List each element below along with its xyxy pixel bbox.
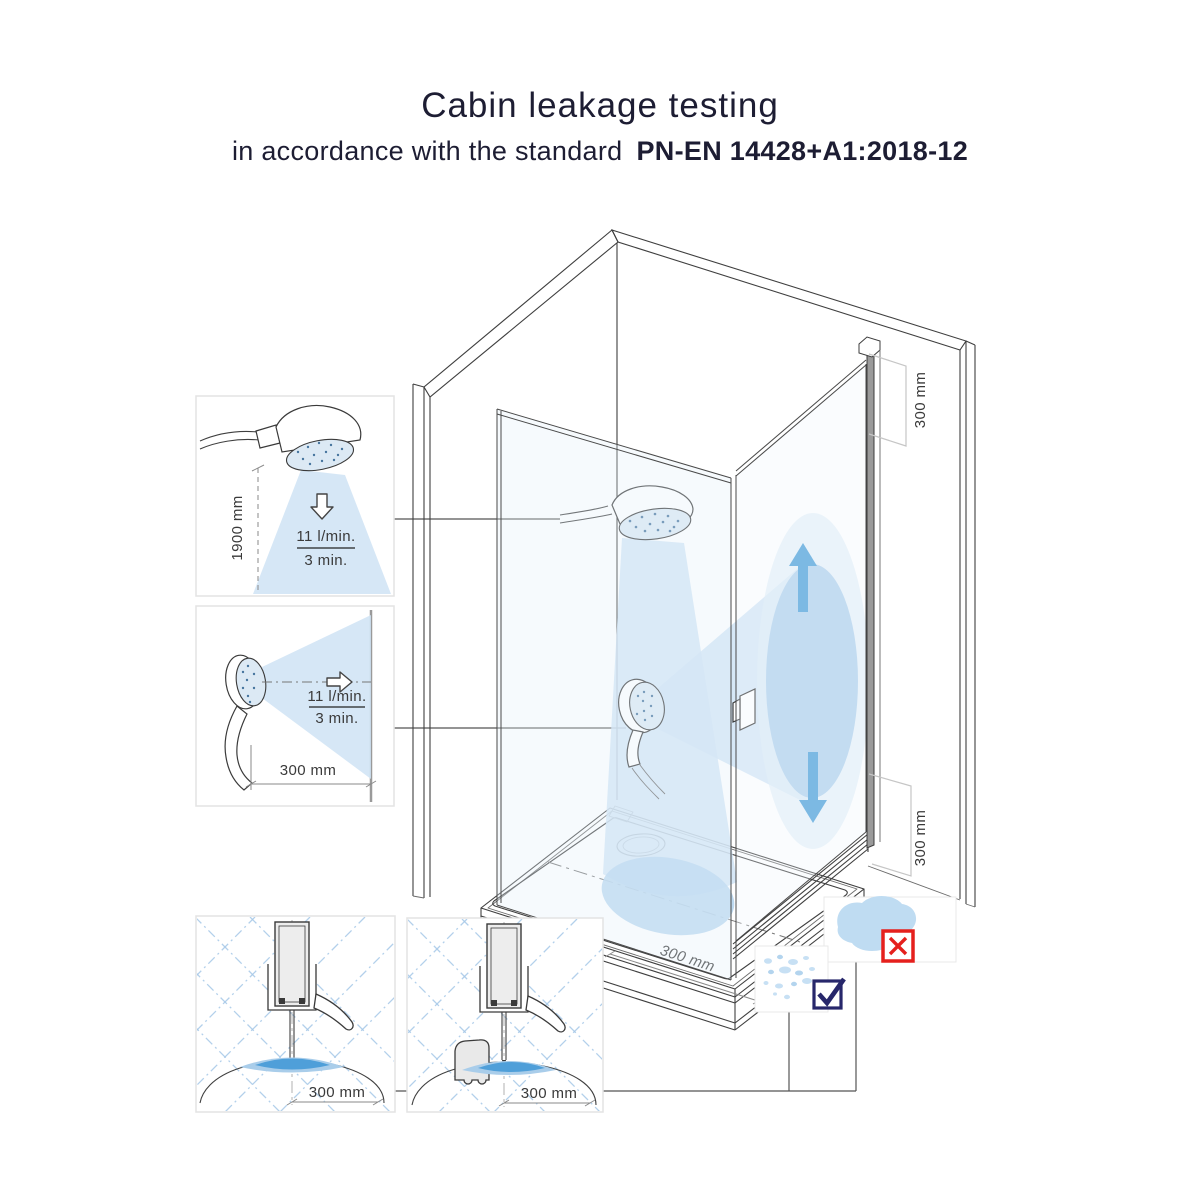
flow-rate-label: 11 l/min. <box>307 688 366 705</box>
threshold-block <box>455 1040 489 1084</box>
inset-vertical-spray-test: 1900 mm 11 l/min. 3 min. <box>196 396 394 596</box>
door-top-dimension-label: 300 mm <box>912 372 929 429</box>
distance-dimension-label: 300 mm <box>521 1085 578 1102</box>
flow-rate-label: 11 l/min. <box>296 528 355 545</box>
duration-label: 3 min. <box>315 710 358 727</box>
inset-horizontal-spray-test: 11 l/min. 3 min. 300 mm <box>196 606 394 806</box>
duration-label: 3 min. <box>304 552 347 569</box>
outside-puddle-area <box>824 896 956 962</box>
distance-dimension-label: 300 mm <box>309 1084 366 1101</box>
glass-cross-section <box>487 924 521 1008</box>
glass-cross-section <box>275 922 309 1006</box>
door-bottom-dimension: 300 mm <box>869 774 929 876</box>
side-glass-panel <box>497 409 731 980</box>
cabin-test-diagram: 300 mm <box>0 0 1200 1200</box>
infographic-canvas: Cabin leakage testing in accordance with… <box>0 0 1200 1200</box>
distance-dimension-label: 300 mm <box>280 762 337 779</box>
glass-door-panel <box>731 360 868 980</box>
fail-x-icon <box>883 931 913 961</box>
pass-check-icon <box>814 979 844 1008</box>
height-dimension-label: 1900 mm <box>229 495 246 560</box>
door-bottom-dimension-label: 300 mm <box>912 810 929 867</box>
door-top-dimension: 300 mm <box>869 354 929 446</box>
